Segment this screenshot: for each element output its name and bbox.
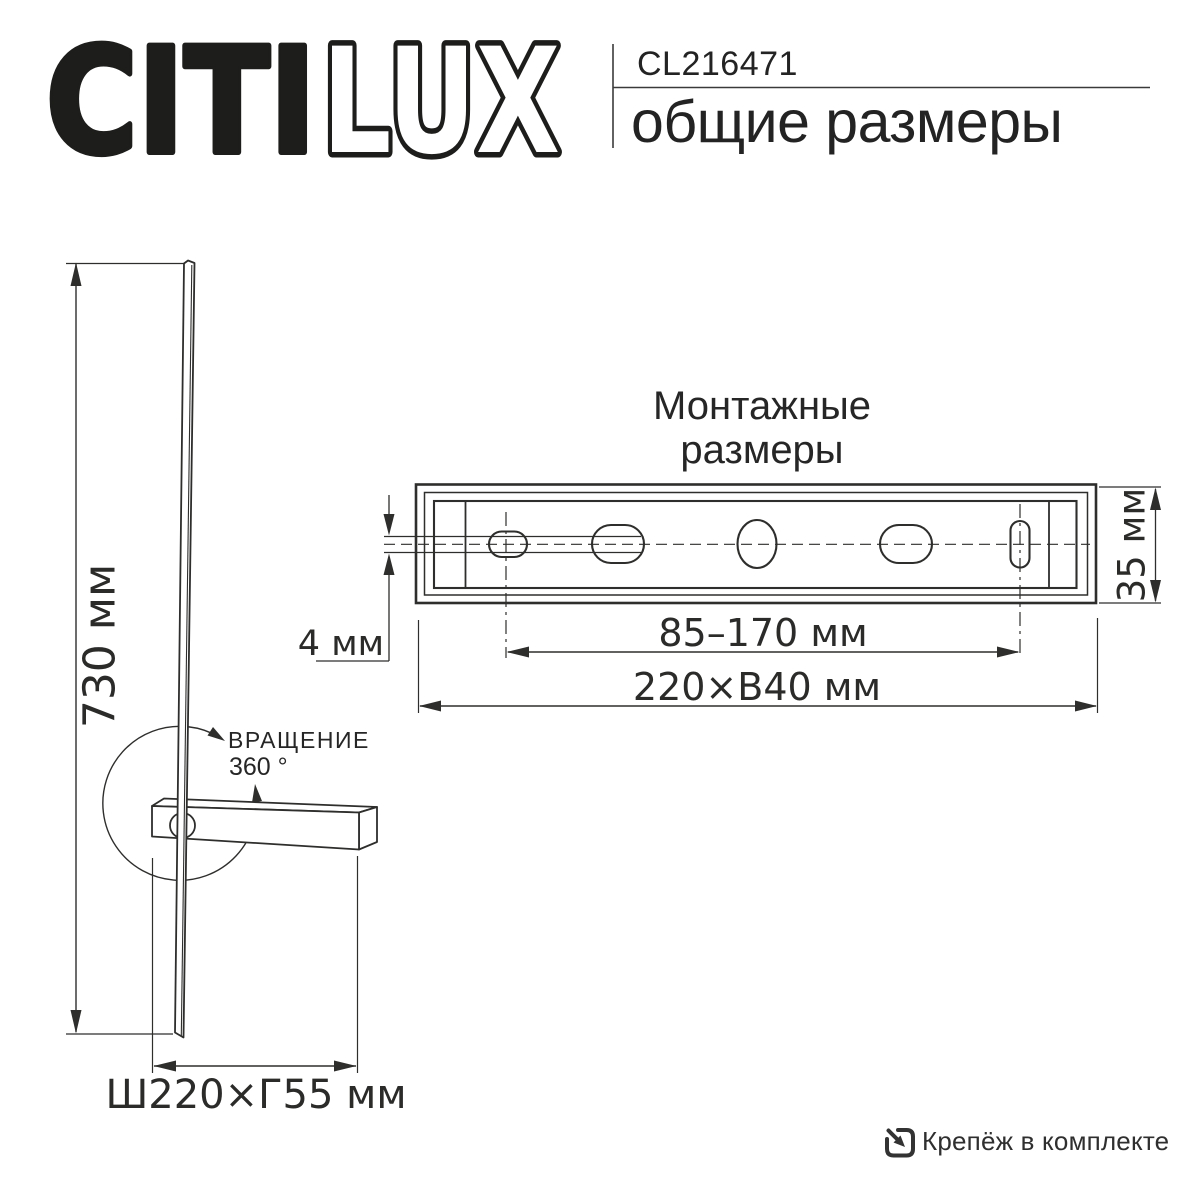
spec-sheet: CITI LUX xyxy=(0,0,1200,1200)
rotation-label: ВРАЩЕНИЕ xyxy=(228,727,370,754)
plate-height-dimension-label: 35 мм xyxy=(1111,488,1154,603)
hardware-included-note: Крепёж в комплекте xyxy=(922,1126,1169,1157)
arrowhead-up xyxy=(71,263,82,287)
overall-dimension-label: 220×В40 мм xyxy=(633,665,881,709)
rotation-arrowhead-right xyxy=(252,784,262,803)
hardware-included-icon xyxy=(887,1130,913,1156)
height-dimension-label: 730 мм xyxy=(75,564,126,728)
rotation-arrowhead-top xyxy=(208,727,226,741)
arrowhead-right xyxy=(334,1061,357,1072)
logo-lux-text: LUX xyxy=(322,17,560,187)
rotation-degrees-label: 360 ° xyxy=(229,753,288,782)
base-dimension-label: Ш220×Г55 мм xyxy=(106,1072,407,1118)
arm-right-face xyxy=(359,807,377,850)
mounting-title-line2: размеры xyxy=(653,428,871,472)
logo-citi-text: CITI xyxy=(46,17,316,187)
technical-drawing: CITI LUX xyxy=(0,0,1200,1200)
product-code: CL216471 xyxy=(637,45,798,84)
arrowhead-left xyxy=(154,1061,177,1072)
mounting-title: Монтажные размеры xyxy=(653,384,871,472)
mounting-title-line1: Монтажные xyxy=(653,384,871,428)
sheet-subtitle: общие размеры xyxy=(631,88,1062,156)
citilux-logo: CITI LUX xyxy=(46,17,560,187)
hole-spacing-dimension-label: 85–170 мм xyxy=(658,611,867,655)
lamp-blade xyxy=(175,261,195,1038)
slot-gap-dimension-label: 4 мм xyxy=(290,624,384,664)
arrowhead-down xyxy=(71,1010,82,1034)
